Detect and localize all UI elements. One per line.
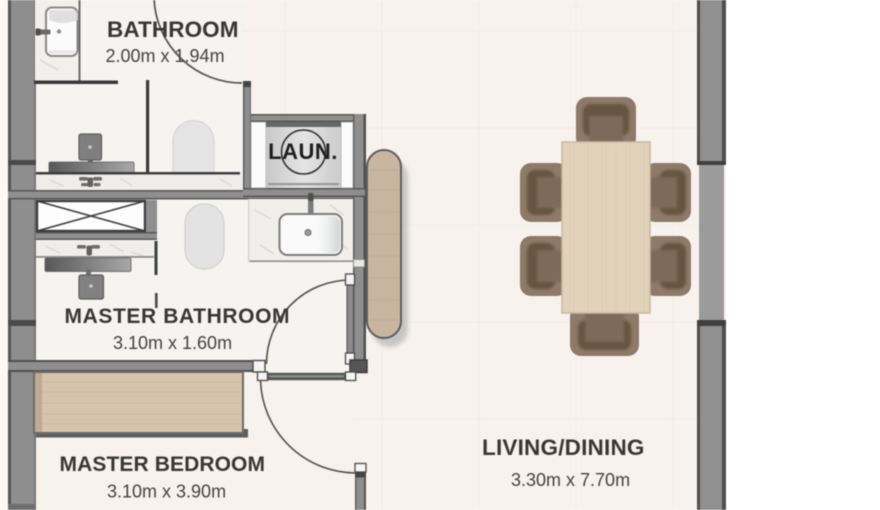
- svg-text:3.10m x 1.60m: 3.10m x 1.60m: [113, 333, 232, 353]
- svg-text:2.00m x 1.94m: 2.00m x 1.94m: [106, 46, 225, 66]
- svg-text:3.10m x 3.90m: 3.10m x 3.90m: [107, 482, 226, 502]
- svg-text:BATHROOM: BATHROOM: [107, 17, 239, 42]
- svg-text:MASTER BEDROOM: MASTER BEDROOM: [60, 453, 266, 476]
- svg-text:MASTER BATHROOM: MASTER BATHROOM: [65, 305, 291, 328]
- svg-text:3.30m x 7.70m: 3.30m x 7.70m: [511, 470, 630, 490]
- svg-text:LIVING/DINING: LIVING/DINING: [482, 435, 645, 460]
- svg-text:LAUN.: LAUN.: [268, 139, 338, 164]
